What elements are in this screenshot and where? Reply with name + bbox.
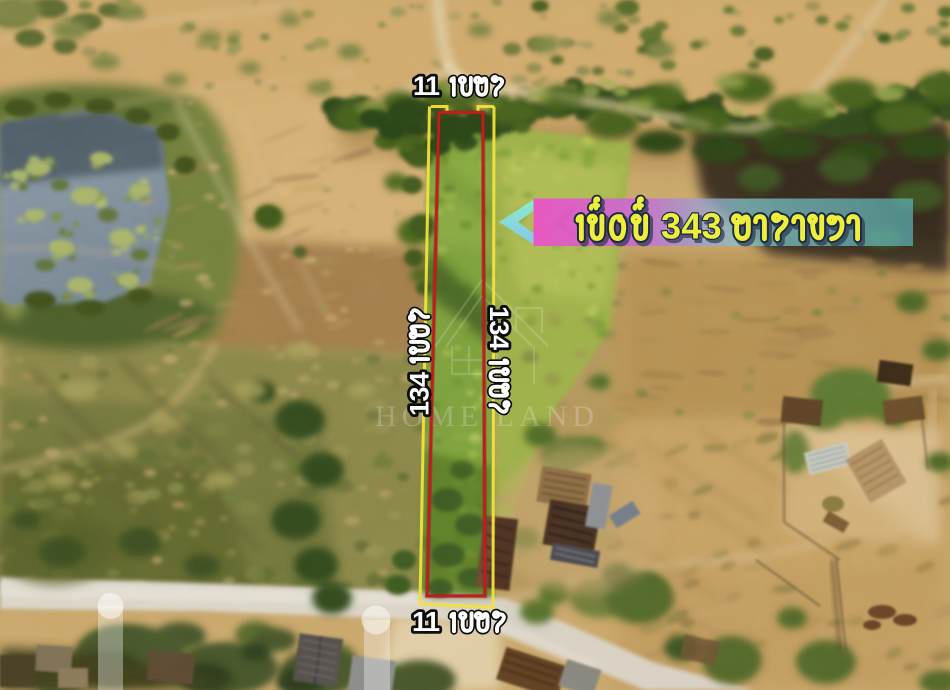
svg-text:134: 134 (405, 372, 435, 416)
svg-text:134: 134 (484, 306, 514, 350)
svg-text:11: 11 (412, 606, 440, 637)
svg-text:11: 11 (413, 71, 439, 101)
svg-text:343: 343 (661, 206, 722, 247)
